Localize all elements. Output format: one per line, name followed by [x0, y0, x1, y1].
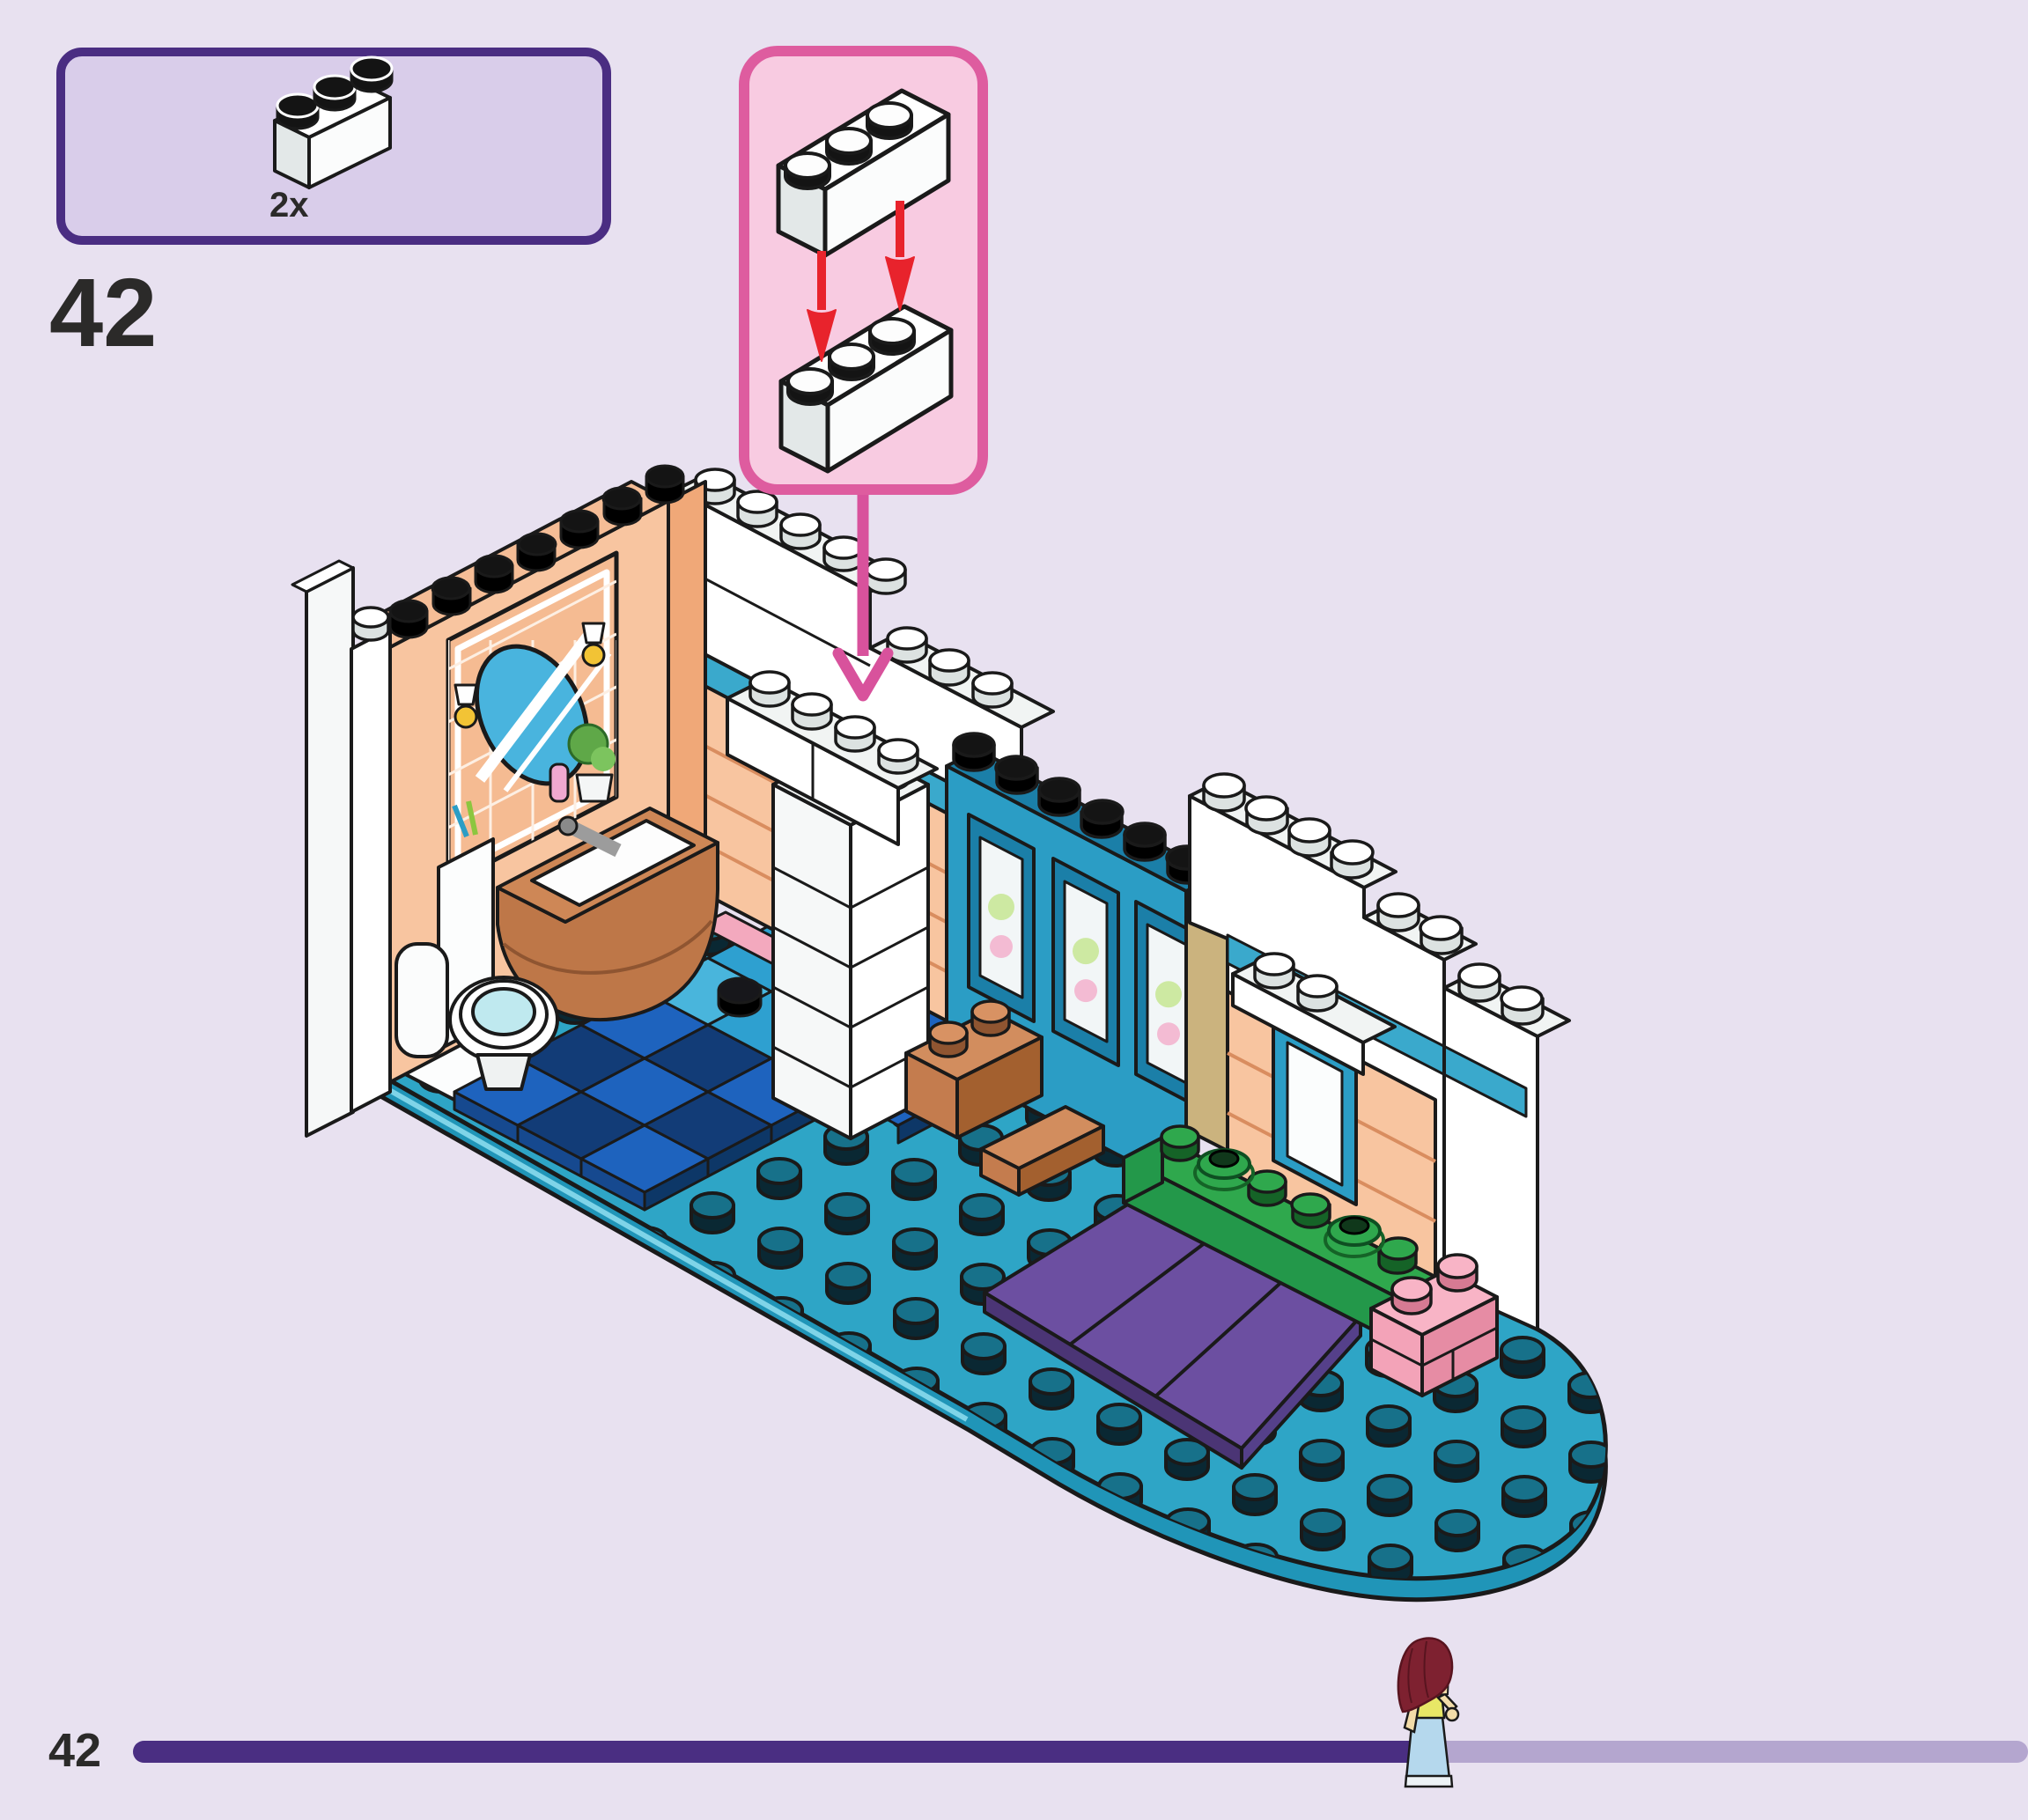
svg-text:2x: 2x — [269, 186, 309, 225]
svg-text:42: 42 — [48, 1724, 101, 1777]
svg-text:42: 42 — [49, 259, 157, 367]
